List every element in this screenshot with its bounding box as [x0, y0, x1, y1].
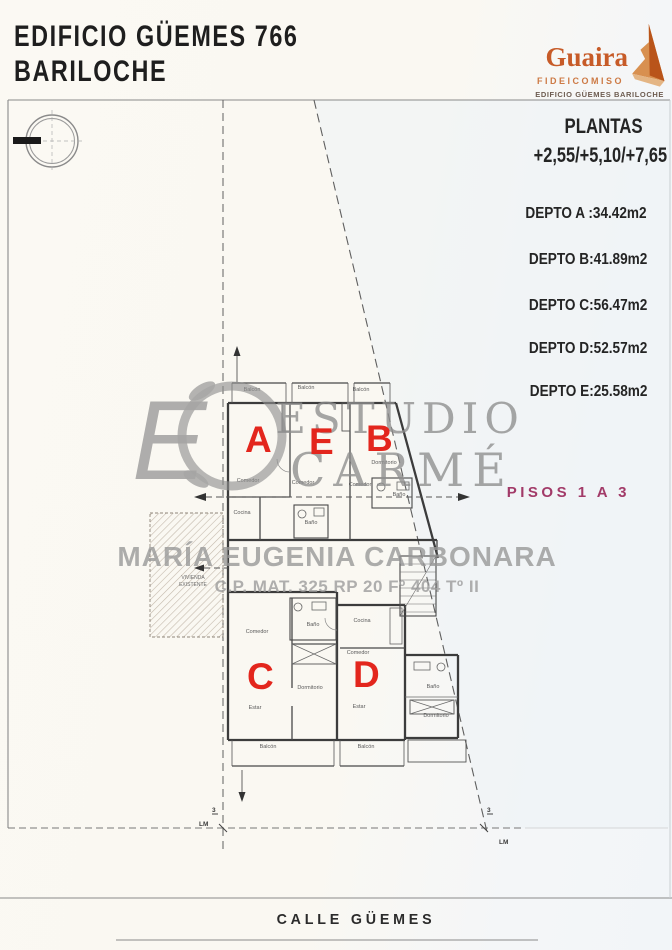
scanned-floor-plan-page: VIVIENDA EXISTENTE [0, 0, 672, 950]
existing-house-block: VIVIENDA EXISTENTE [150, 513, 223, 637]
north-bar-icon [13, 137, 41, 144]
survey-circle-symbol [13, 110, 82, 172]
plantas-title: PLANTAS [565, 115, 643, 139]
watermark-architect-name: MARÍA EUGENIA CARBONARA [87, 541, 587, 573]
room-label: Balcón [358, 744, 375, 750]
survey-labels: LM 3 3 LM [199, 807, 508, 846]
lot-line-label: LM [499, 839, 508, 846]
unit-letter-d: D [353, 656, 380, 693]
room-label: Balcón [260, 744, 277, 750]
depto-e-area: DEPTO E:25.58m2 [529, 383, 647, 401]
building-title-line1: EDIFICIO GÜEMES 766 [14, 20, 299, 54]
logo-name: Guaira [545, 42, 628, 73]
survey-mark: 3 [212, 807, 216, 814]
logo-subtitle: FIDEICOMISO [537, 76, 624, 86]
room-label: Dormitorio [423, 713, 448, 719]
room-label: Cocina [233, 510, 251, 516]
room-label: Cocina [353, 618, 371, 624]
room-label: Estar [249, 705, 262, 711]
building-title-line2: BARILOCHE [14, 55, 167, 89]
room-label: Baño [305, 520, 318, 526]
logo-tagline: EDIFICIO GÜEMES BARILOCHE [535, 90, 664, 99]
room-label: Balcón [353, 387, 370, 393]
room-label: Balcón [298, 385, 315, 391]
room-label: Baño [307, 622, 320, 628]
unit-letter-c: C [247, 658, 274, 695]
plantas-levels: +2,55/+5,10/+7,65 [534, 144, 667, 168]
depto-b-area: DEPTO B:41.89m2 [529, 251, 647, 269]
monogram-letter: E [132, 378, 208, 503]
room-label: Dormitorio [297, 685, 322, 691]
unit-letter-b: B [366, 420, 393, 457]
pisos-label: PISOS 1 A 3 [507, 484, 630, 501]
room-label: Comedor [246, 629, 269, 635]
lot-line-label: LM [199, 821, 208, 828]
unit-letter-a: A [245, 421, 272, 458]
depto-a-area: DEPTO A :34.42m2 [526, 205, 647, 223]
depto-c-area: DEPTO C:56.47m2 [529, 297, 647, 315]
room-label: Baño [427, 684, 440, 690]
survey-ticks [212, 814, 493, 832]
room-label: Estar [353, 704, 366, 710]
guaira-logo: Guaira FIDEICOMISO EDIFICIO GÜEMES BARIL… [540, 20, 672, 105]
watermark-studio-line1: ESTUDIO [250, 394, 550, 443]
street-name: CALLE GÜEMES [56, 911, 656, 928]
survey-mark: 3 [487, 807, 491, 814]
unit-letter-e: E [309, 423, 334, 460]
bathroom-c [290, 598, 336, 640]
mountain-icon [622, 22, 670, 94]
depto-d-area: DEPTO D:52.57m2 [529, 340, 647, 358]
watermark-registration: C.P. MAT. 325 RP 20 Fº 404 Tº II [97, 577, 597, 597]
